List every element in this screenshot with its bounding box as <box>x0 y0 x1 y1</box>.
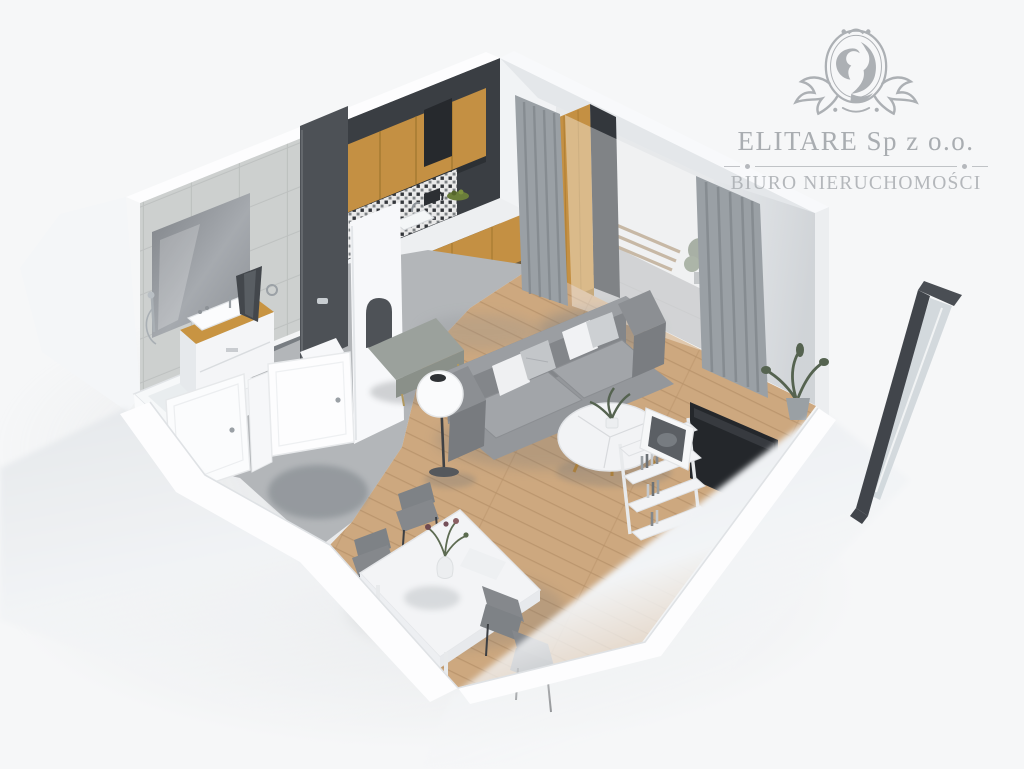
extractor-hood <box>424 98 452 167</box>
watermark-company: ELITARE Sp z o.o. <box>722 126 990 157</box>
lion-crest-icon <box>790 24 922 124</box>
door-pier <box>248 372 272 472</box>
curtain-left <box>515 95 568 306</box>
curtain-right <box>696 176 768 398</box>
bathroom-partition <box>350 202 404 444</box>
cistern-panel <box>300 106 348 368</box>
toilet <box>300 106 348 385</box>
wall-end-face-east <box>815 207 829 416</box>
round-rug <box>268 465 368 519</box>
watermark-tagline: BIURO NIERUCHOMOŚCI <box>722 173 990 195</box>
floorplan-scene: ELITARE Sp z o.o. BIURO NIERUCHOMOŚCI <box>0 0 1024 769</box>
watermark: ELITARE Sp z o.o. BIURO NIERUCHOMOŚCI <box>722 24 990 195</box>
watermark-divider <box>724 164 988 169</box>
entry-door <box>268 352 354 456</box>
